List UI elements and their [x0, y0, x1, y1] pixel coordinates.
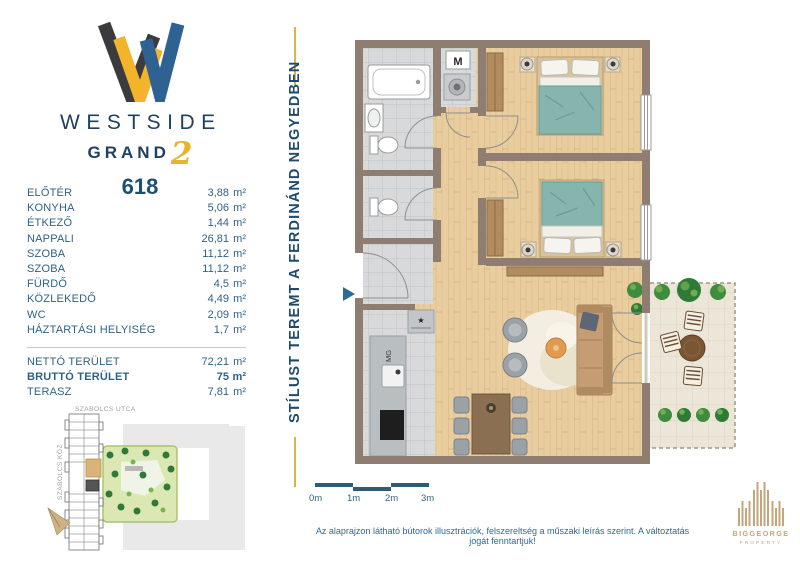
- tagline: STÍLUST TEREMT A FERDINÁND NEGYEDBEN: [287, 89, 303, 423]
- room-area: 5,06: [193, 202, 229, 214]
- brand-block: WESTSIDE GRAND2 618: [60, 22, 220, 200]
- bedroom1-window: [641, 95, 651, 150]
- highlighted-unit: [86, 459, 101, 477]
- terrace-chair: [683, 366, 703, 386]
- sink: [382, 365, 404, 387]
- toilet: [370, 198, 398, 216]
- scale-label: 3m: [421, 493, 434, 504]
- brand-grand: GRAND: [88, 143, 170, 162]
- entry-floor: [363, 244, 433, 304]
- area-row: TERASZ7,81m²: [27, 386, 246, 401]
- brand-name: WESTSIDE: [60, 111, 220, 135]
- westside-w-logo-icon: [94, 22, 186, 102]
- area-row: NETTÓ TERÜLET72,21m²: [27, 356, 246, 371]
- room-area: 75: [193, 371, 229, 383]
- windows: [641, 95, 651, 383]
- area-unit: m²: [229, 187, 246, 199]
- area-row: SZOBA11,12m²: [27, 263, 246, 278]
- sofa: [577, 305, 612, 395]
- biggeorge-logo: BIGGEORGE PROPERTY: [727, 474, 795, 554]
- area-unit: m²: [229, 217, 246, 229]
- room-area: 7,81: [193, 386, 229, 398]
- washing-machine-label: M: [453, 56, 462, 68]
- room-area: 4,5: [193, 278, 229, 290]
- gold-line-bottom: [294, 437, 296, 487]
- disclaimer-text: Az alaprajzon látható bútorok illusztrác…: [305, 526, 700, 546]
- area-row: KONYHA5,06m²: [27, 202, 246, 217]
- room-area: 26,81: [193, 233, 229, 245]
- area-unit: m²: [229, 309, 246, 321]
- floor-plan: MG ★ M: [340, 20, 740, 470]
- area-row: HÁZTARTÁSI HELYISÉG1,7m²: [27, 324, 246, 339]
- scale-label: 1m: [347, 493, 360, 504]
- room-list: ELŐTÉR3,88m²KONYHA5,06m²ÉTKEZŐ1,44m²NAPP…: [27, 187, 246, 339]
- area-unit: m²: [229, 386, 246, 398]
- area-row: ÉTKEZŐ1,44m²: [27, 217, 246, 232]
- biggeorge-name: BIGGEORGE: [733, 529, 790, 538]
- area-table: ELŐTÉR3,88m²KONYHA5,06m²ÉTKEZŐ1,44m²NAPP…: [27, 187, 246, 401]
- area-row: KÖZLEKEDŐ4,49m²: [27, 293, 246, 308]
- room-area: 72,21: [193, 356, 229, 368]
- room-label: FÜRDŐ: [27, 278, 193, 290]
- toilet: [370, 136, 398, 154]
- area-unit: m²: [229, 278, 246, 290]
- room-label: ÉTKEZŐ: [27, 217, 193, 229]
- table-divider: [27, 347, 246, 348]
- sofa-pillow: [579, 312, 599, 332]
- street-label-left: SZABOLCS KÖZ: [56, 444, 64, 500]
- stove: [380, 410, 404, 440]
- room-label: SZOBA: [27, 263, 193, 275]
- room-area: 2,09: [193, 309, 229, 321]
- park: [103, 446, 177, 522]
- room-label: NAPPALI: [27, 233, 193, 245]
- biggeorge-property: PROPERTY: [740, 540, 783, 545]
- area-row: FÜRDŐ4,5m²: [27, 278, 246, 293]
- area-unit: m²: [229, 324, 246, 336]
- room-area: 1,44: [193, 217, 229, 229]
- terrace-chair: [660, 331, 682, 353]
- scale-segment: [353, 487, 391, 491]
- room-label: KÖZLEKEDŐ: [27, 293, 193, 305]
- dishwasher-label: MG: [384, 350, 393, 362]
- scale-label: 0m: [309, 493, 322, 504]
- area-unit: m²: [229, 233, 246, 245]
- area-row: WC2,09m²: [27, 309, 246, 324]
- brand-number-2: 2: [171, 136, 193, 172]
- room-area: 3,88: [193, 187, 229, 199]
- area-row: SZOBA11,12m²: [27, 248, 246, 263]
- scale-segment: [391, 483, 429, 487]
- brand-subname: GRAND2: [60, 136, 220, 166]
- area-unit: m²: [229, 248, 246, 260]
- biggeorge-logo-bars: [738, 482, 784, 526]
- room-label: WC: [27, 309, 193, 321]
- room-label: TERASZ: [27, 386, 193, 398]
- room-area: 1,7: [193, 324, 229, 336]
- room-label: KONYHA: [27, 202, 193, 214]
- area-unit: m²: [229, 293, 246, 305]
- sideboard: [507, 267, 603, 276]
- area-row: NAPPALI26,81m²: [27, 233, 246, 248]
- building-outline: [65, 414, 103, 550]
- area-row: ELŐTÉR3,88m²: [27, 187, 246, 202]
- indoor-plant: [627, 282, 643, 298]
- utility-room: M: [444, 51, 470, 100]
- area-unit: m²: [229, 356, 246, 368]
- room-label: HÁZTARTÁSI HELYISÉG: [27, 324, 193, 336]
- room-label: ELŐTÉR: [27, 187, 193, 199]
- wc-room: [370, 198, 398, 216]
- entrance-arrow-icon: [343, 287, 355, 301]
- totals-list: NETTÓ TERÜLET72,21m²BRUTTÓ TERÜLET75m²TE…: [27, 356, 246, 402]
- area-row: BRUTTÓ TERÜLET75m²: [27, 371, 246, 386]
- area-unit: m²: [229, 263, 246, 275]
- area-unit: m²: [229, 371, 246, 383]
- brochure-page: WESTSIDE GRAND2 618 ELŐTÉR3,88m²KONYHA5,…: [0, 0, 800, 565]
- boiler-symbol: ★: [417, 316, 424, 325]
- building-core: [86, 480, 99, 491]
- room-area: 11,12: [193, 263, 229, 275]
- scale-label: 2m: [385, 493, 398, 504]
- room-label: BRUTTÓ TERÜLET: [27, 371, 193, 383]
- bedroom2-window: [641, 205, 651, 260]
- room-area: 4,49: [193, 293, 229, 305]
- room-label: NETTÓ TERÜLET: [27, 356, 193, 368]
- terrace: [650, 278, 735, 448]
- terrace-chair: [684, 311, 704, 331]
- room-label: SZOBA: [27, 248, 193, 260]
- room-area: 11,12: [193, 248, 229, 260]
- area-unit: m²: [229, 202, 246, 214]
- scale-bar: 0m 1m 2m 3m: [308, 480, 442, 506]
- street-label-top: SZABOLCS UTCA: [75, 406, 136, 413]
- site-map: SZABOLCS UTCA SZABOLCS KÖZ: [25, 402, 270, 562]
- terrace-table: [679, 335, 705, 361]
- scale-segment: [315, 483, 353, 487]
- dining-area: [454, 394, 527, 455]
